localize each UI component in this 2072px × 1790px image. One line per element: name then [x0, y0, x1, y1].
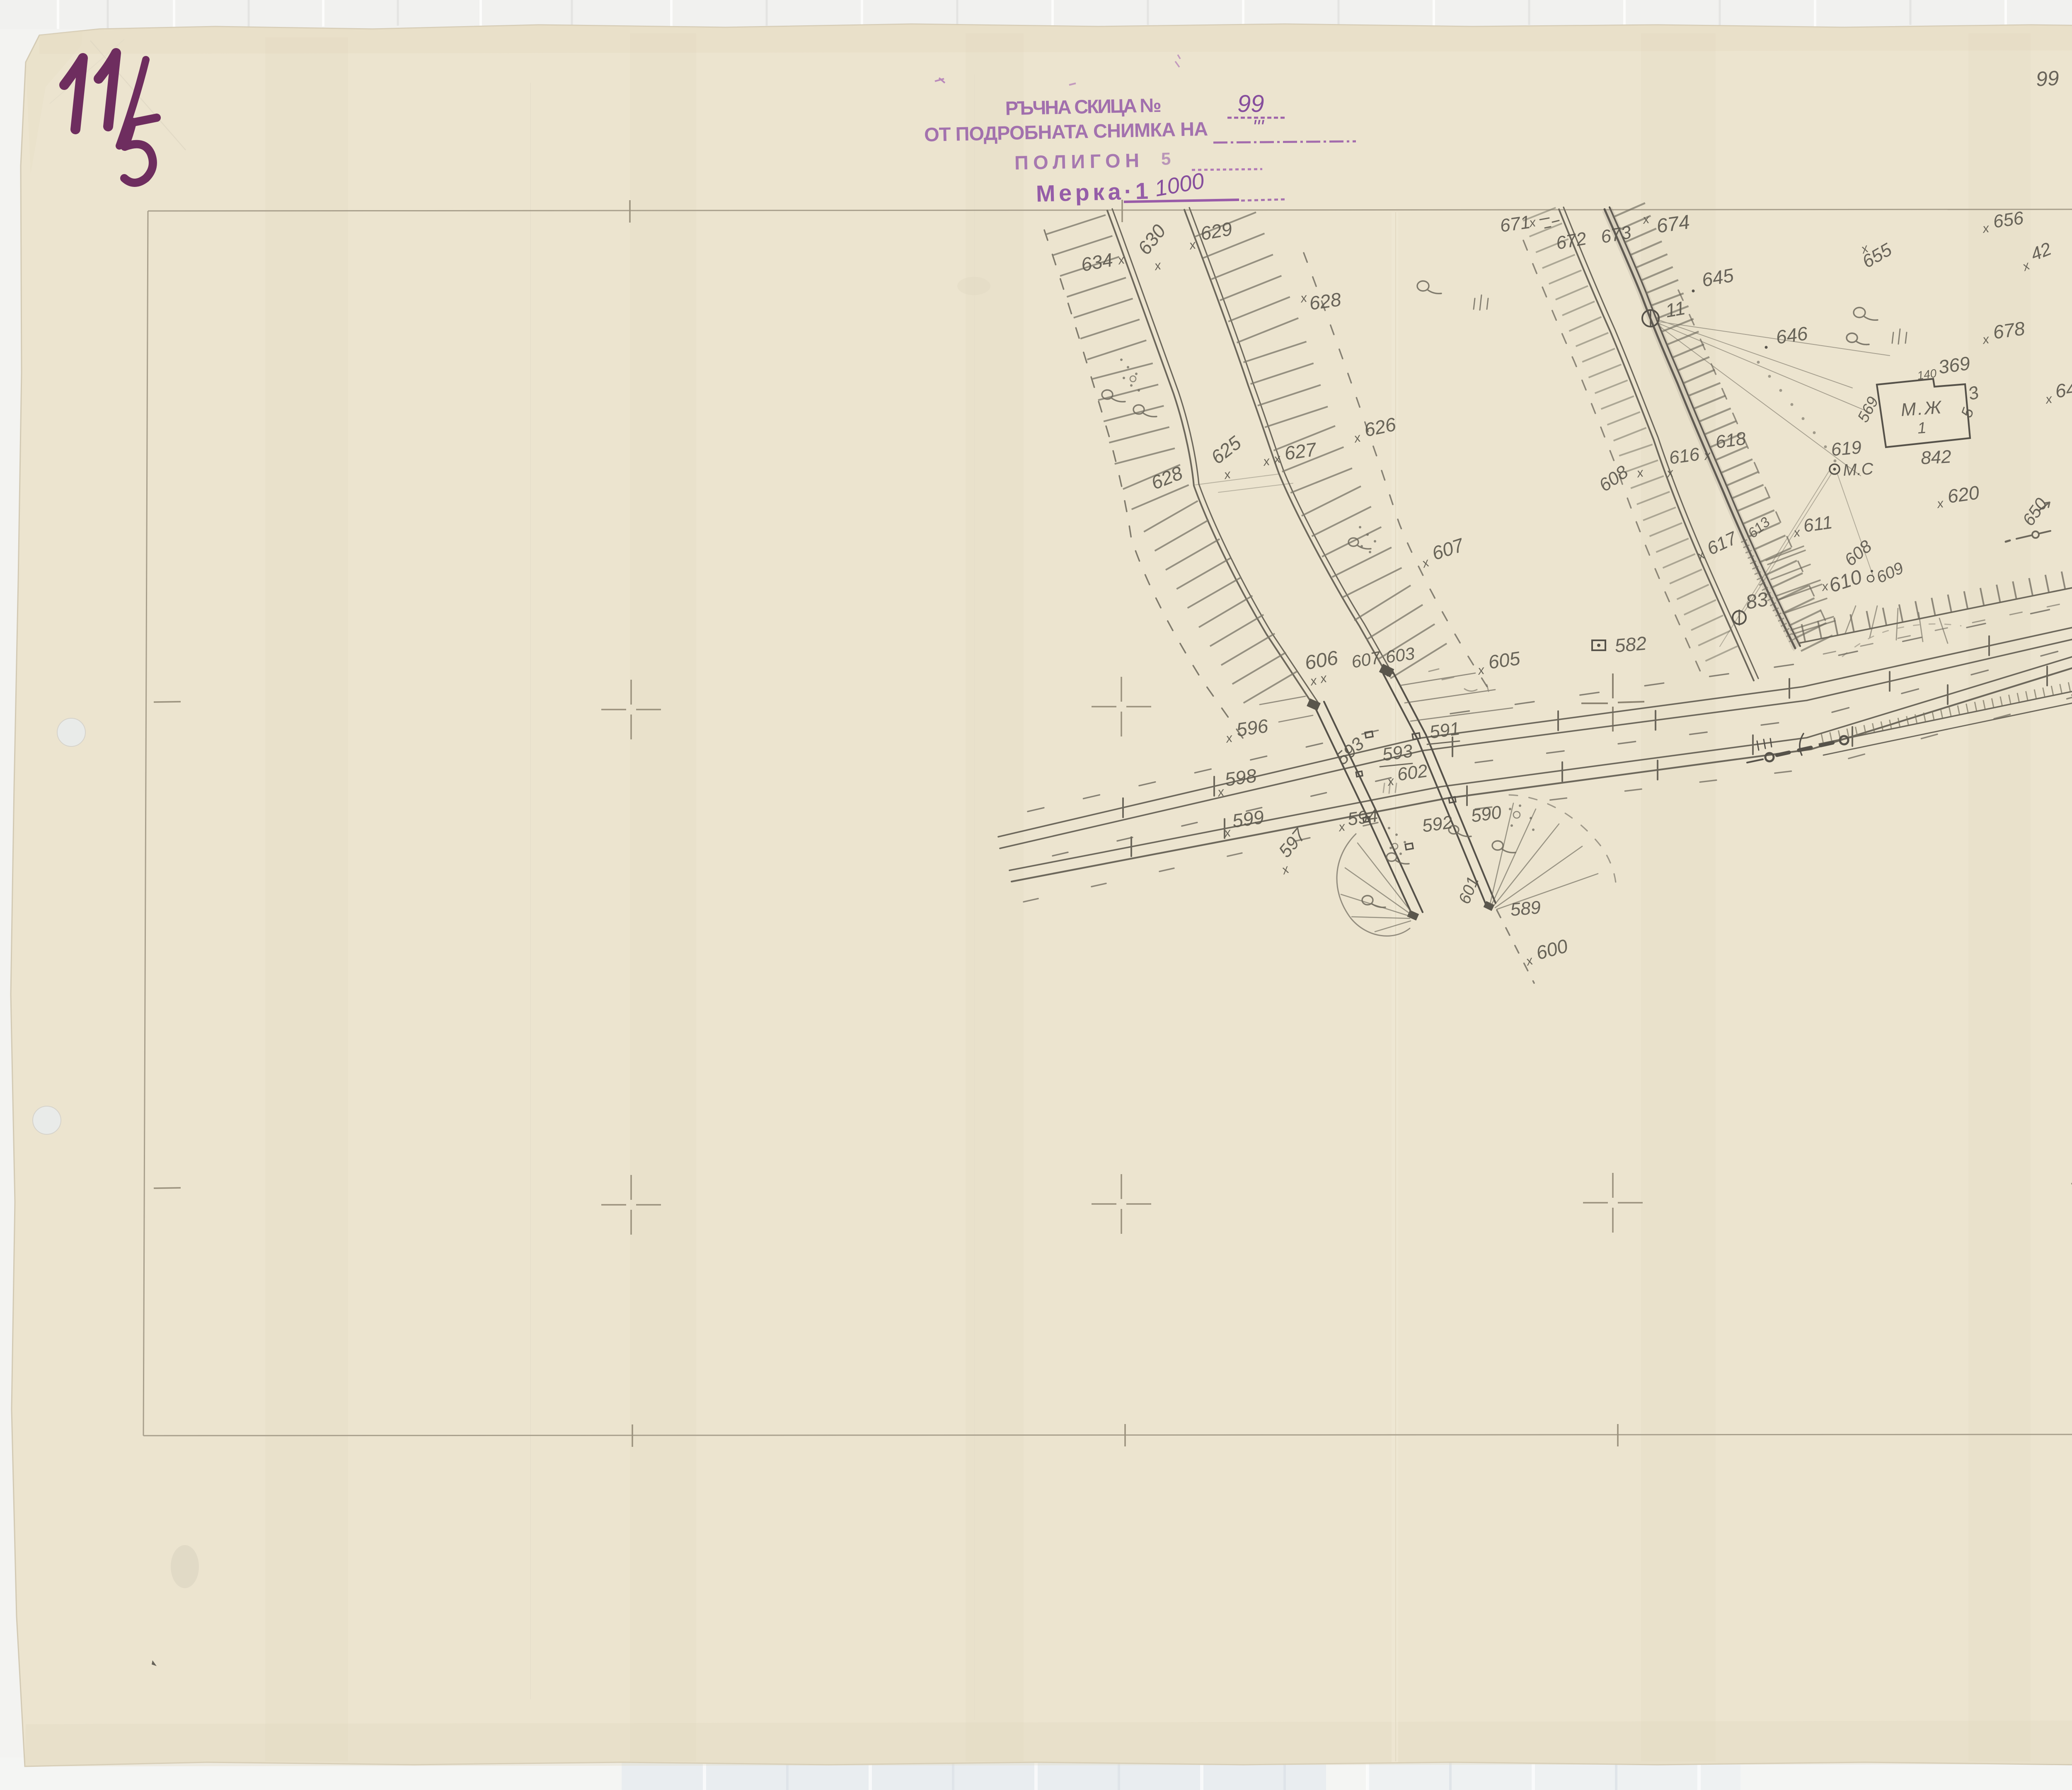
svg-text:РЪЧНА СКИЦА №: РЪЧНА СКИЦА № — [1005, 94, 1164, 119]
svg-text:593: 593 — [1381, 741, 1414, 765]
svg-text:594: 594 — [1346, 805, 1380, 830]
svg-text:598: 598 — [1223, 765, 1258, 790]
svg-text:671: 671 — [1499, 212, 1532, 236]
svg-text:611: 611 — [1802, 512, 1834, 536]
svg-text:99: 99 — [1237, 90, 1264, 117]
svg-text:842: 842 — [1920, 446, 1952, 468]
svg-text:11: 11 — [1664, 297, 1687, 322]
svg-text:582: 582 — [1614, 632, 1647, 656]
svg-text:5: 5 — [1161, 149, 1173, 169]
svg-text:619: 619 — [1830, 437, 1862, 460]
svg-text:605: 605 — [1487, 647, 1522, 673]
svg-text:646: 646 — [1774, 322, 1809, 348]
svg-text:592: 592 — [1421, 812, 1454, 836]
svg-text:599: 599 — [1231, 806, 1265, 832]
svg-text:591: 591 — [1428, 718, 1462, 743]
svg-text:140: 140 — [1917, 367, 1938, 382]
svg-text:99: 99 — [2036, 66, 2060, 91]
svg-text:616: 616 — [1668, 444, 1701, 468]
svg-text:602: 602 — [1396, 761, 1429, 785]
svg-text:589: 589 — [1510, 897, 1542, 920]
svg-text:674: 674 — [1655, 211, 1691, 237]
svg-text:596: 596 — [1235, 715, 1270, 741]
svg-text:627: 627 — [1283, 438, 1318, 464]
svg-text:83: 83 — [1744, 588, 1770, 614]
svg-text:649: 649 — [2054, 376, 2072, 402]
svg-text:369: 369 — [1937, 352, 1971, 378]
svg-text:''': ''' — [1252, 116, 1264, 138]
svg-text:М.С: М.С — [1842, 460, 1874, 480]
svg-text:656: 656 — [1992, 208, 2025, 232]
svg-text:628: 628 — [1308, 288, 1343, 314]
svg-text:618: 618 — [1714, 428, 1748, 453]
svg-text:620: 620 — [1946, 482, 1981, 507]
svg-text:590: 590 — [1470, 802, 1503, 826]
svg-text:1: 1 — [1917, 419, 1927, 437]
svg-text:603: 603 — [1385, 644, 1416, 667]
svg-text:М.Ж: М.Ж — [1900, 397, 1943, 420]
svg-text:678: 678 — [1992, 317, 2026, 343]
